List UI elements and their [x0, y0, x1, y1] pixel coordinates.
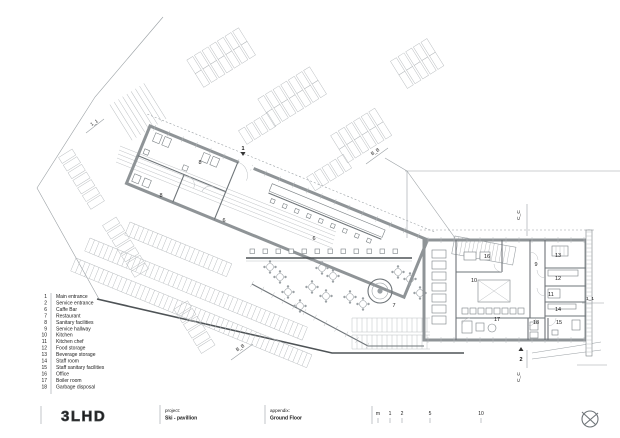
legend-num: 11: [42, 339, 47, 345]
restaurant-facade: [251, 281, 425, 348]
legend-label: Sanitary facilities: [56, 320, 94, 326]
room-label-6: 6: [222, 218, 225, 224]
right-wing: [424, 230, 592, 356]
legend-num: 17: [41, 378, 47, 384]
legend-num: 1: [44, 294, 47, 300]
legend-num: 9: [44, 326, 47, 332]
legend-label: Service hallway: [56, 326, 91, 332]
legend-num: 2: [44, 300, 47, 306]
legend-label: Restaurant: [56, 313, 81, 319]
legend-num: 16: [41, 371, 47, 377]
legend-num: 7: [44, 313, 47, 319]
room-label-8: 8: [159, 193, 162, 199]
north-arrow-icon: [582, 411, 598, 427]
scale-mark-2: 2: [401, 411, 404, 417]
section-marker-1_1: 1_1: [586, 296, 594, 302]
legend-num: 15: [41, 365, 47, 371]
entrance-arrow-icon: [519, 347, 524, 351]
room-label-16: 16: [484, 254, 490, 260]
legend-num: 10: [41, 333, 47, 339]
section-marker-C_C: C_C: [516, 372, 522, 382]
parking-and-terrace: [59, 28, 444, 368]
legend-label: Kitchen chef: [56, 339, 84, 345]
scale-mark-10: 10: [478, 411, 484, 417]
room-label-18: 18: [533, 320, 539, 326]
legend-label: Main entrance: [56, 294, 88, 300]
legend-label: Caffe Bar: [56, 307, 77, 313]
scale-mark-m: m: [376, 411, 380, 417]
left-wing: [120, 114, 436, 299]
room-label-12: 12: [555, 276, 561, 282]
room-label-17: 17: [494, 317, 500, 323]
legend-label: Food storage: [56, 346, 86, 352]
room-label-10: 10: [471, 278, 477, 284]
room-label-9: 9: [534, 262, 537, 268]
legend-num: 13: [41, 352, 47, 358]
legend-label: Office: [56, 371, 69, 377]
legend-label: Boiler room: [56, 378, 82, 384]
legend-label: Staff room: [56, 359, 79, 365]
room-label-8: 8: [198, 160, 201, 166]
room-label-7: 7: [392, 303, 395, 309]
room-label-6: 6: [312, 236, 315, 242]
room-label-13: 13: [555, 253, 561, 259]
room-label-15: 15: [556, 320, 562, 326]
legend-label: Beverage storage: [56, 352, 96, 358]
restaurant-bar: [246, 249, 412, 261]
legend-label: Garbage disposal: [56, 384, 95, 390]
legend-num: 18: [41, 384, 47, 390]
title-block: 3LHD project: Ski - pavillion appendix: …: [41, 405, 598, 427]
legend: 1Main entrance2Service entrance6Caffe Ba…: [41, 293, 104, 394]
appendix-label: appendix:: [270, 408, 290, 413]
section-marker-C_C: C_C: [516, 210, 522, 220]
entrance-marker-1: 1: [241, 146, 244, 152]
room-label-14: 14: [555, 307, 561, 313]
site-boundary: [37, 17, 620, 365]
room-label-11: 11: [548, 292, 554, 298]
legend-label: Service entrance: [56, 300, 94, 306]
legend-num: 14: [41, 359, 47, 365]
section-marker-B_B: B_B: [235, 343, 246, 353]
legend-label: Staff sanitary facilities: [56, 365, 105, 371]
appendix-value: Ground Floor: [270, 416, 302, 422]
scale-mark-1: 1: [389, 411, 392, 417]
legend-num: 12: [41, 346, 47, 352]
floor-plan-sheet: 886671691312111014151817121_1B_BB_BC_CC_…: [0, 0, 620, 438]
scale-mark-5: 5: [429, 411, 432, 417]
entrance-marker-2: 2: [519, 357, 522, 363]
project-value: Ski - pavillion: [165, 416, 197, 422]
floor-plan-svg: 886671691312111014151817121_1B_BB_BC_CC_…: [0, 0, 620, 438]
section-marker-B_B: B_B: [370, 147, 381, 157]
restaurant-tables: [263, 260, 426, 312]
project-label: project:: [165, 408, 180, 413]
scale-bar: m12510: [376, 411, 484, 423]
legend-num: 6: [44, 307, 47, 313]
logo-3lhd: 3LHD: [61, 408, 106, 425]
legend-num: 8: [44, 320, 47, 326]
legend-label: Kitchen: [56, 333, 73, 339]
